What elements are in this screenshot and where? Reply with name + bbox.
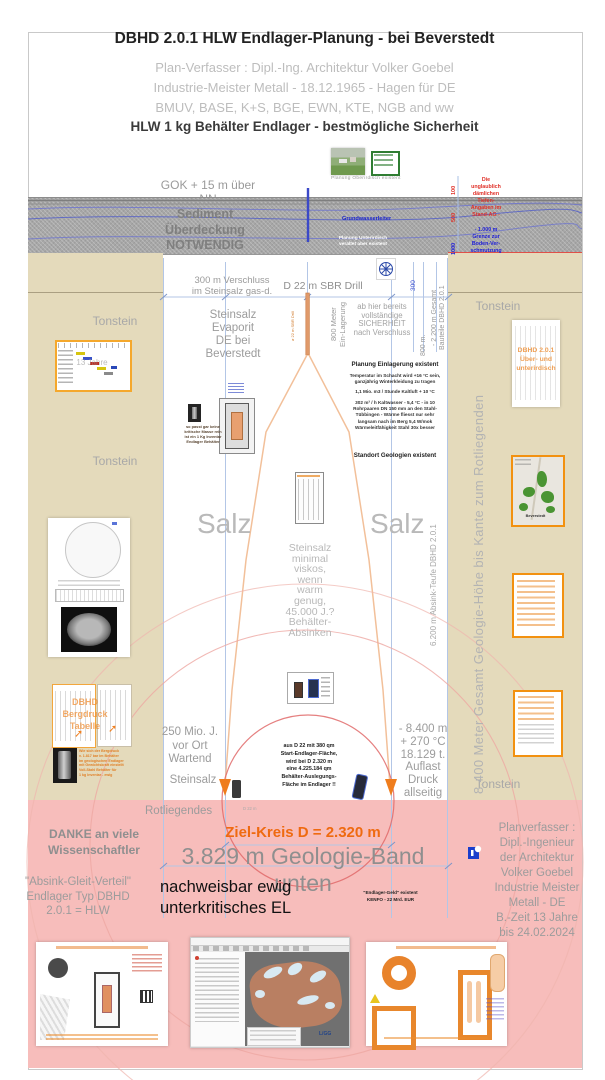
surface-building-shape (339, 159, 347, 163)
steel-container-note: Wie sich der Bergdruck v. 1.817 bar im B… (79, 749, 133, 778)
right-doc-thumbnail: DBHD 2.0.1 Über- und unterirdisch (512, 320, 560, 407)
salz-label-left: Salz (197, 508, 251, 540)
green-table-rows (374, 154, 393, 169)
plan-view-thumbnail (48, 518, 130, 657)
depth-mark-1000: 1000 (451, 236, 459, 255)
thanks-note: DANKE an viele Wissenschaftler (35, 826, 153, 858)
bdr-ring (382, 956, 416, 990)
surface-building-shape2 (350, 157, 356, 162)
poster-subtitle: HLW 1 kg Behälter Endlager - bestmöglich… (28, 119, 581, 134)
bdr-warning-triangle (370, 994, 380, 1003)
gantt-label: 13 Jahre (67, 358, 117, 367)
plan-circle (65, 522, 121, 578)
steel-container-photo (53, 748, 77, 783)
rotliegendes-label: Rotliegendes (145, 805, 212, 817)
container-section-core (231, 412, 243, 440)
ziel-kreis-label: Ziel-Kreis D = 2.320 m (203, 824, 403, 841)
einlagerung-p2: 1,1 Mio. m3 / Stunde Kaltluft + 10 °C (335, 389, 455, 394)
right-doc-label: DBHD 2.0.1 Über- und unterirdisch (512, 346, 560, 373)
container-photo-small (188, 404, 201, 422)
right-table-2-rows-gray (518, 724, 554, 746)
bss-salt-blob-4 (255, 990, 265, 998)
bottom-drawing-right (366, 942, 507, 1046)
salt-top-line-left (28, 292, 163, 293)
map-thumbnail: Beverstedt (511, 455, 565, 527)
map-legend-text (515, 459, 531, 468)
map-green-area-5 (546, 506, 555, 513)
d22-small-label: D 22 m (243, 806, 257, 811)
right-table-2-rows (518, 696, 554, 720)
salz-label-right: Salz (370, 508, 424, 540)
underground-plan-note: Planung Unterirdisch veraltet aber exist… (330, 236, 396, 249)
bdr-slot-2 (476, 981, 481, 1023)
gantt-header-row (58, 343, 125, 348)
tonstein-label-left-top: Tonstein (83, 314, 147, 328)
compass-icon (376, 258, 396, 280)
map-caption: Beverstedt (513, 514, 558, 518)
area-calc-note: aus D 22 mit 380 qm Start-Endlager-Fläch… (274, 743, 344, 790)
salt-core-photo (61, 607, 117, 652)
gantt-bar-5 (104, 372, 113, 375)
bdr-slot-1 (467, 981, 472, 1023)
bdl-title-line (56, 946, 148, 949)
steinsalz-small-label: Steinsalz (163, 774, 223, 786)
steel-container-cylinder (58, 751, 71, 779)
bergdruck-arrow-1: ➚ (74, 727, 83, 740)
author-block: Plan-Verfasser : Dipl.-Ing. Architektur … (28, 58, 581, 118)
repo-type-note: "Absink-Gleit-Verteil" Endlager Typ DBHD… (18, 875, 138, 919)
plan-section-bar (55, 589, 124, 602)
bss-blue-dot (195, 956, 199, 960)
load-note: - 8.400 m + 270 °C 18.129 t. Auflast Dru… (393, 723, 453, 800)
waiting-note: 250 Mio. J. vor Ort Wartend (158, 726, 222, 767)
bss-left-panel (191, 952, 246, 1046)
bdr-frame-a (372, 1006, 416, 1050)
bergdruck-arrow-2: ➚ (108, 722, 117, 735)
geology-log-thumbnail (295, 472, 324, 524)
dim-800: 800 m. (420, 312, 429, 356)
subcritical-note: nachweisbar ewig unterkritisches EL (160, 877, 320, 919)
bottom-software-screenshot: L/GG (190, 937, 350, 1048)
bdl-container (94, 972, 120, 1028)
bss-tree-items (195, 958, 239, 1022)
green-table-thumbnail (371, 151, 400, 176)
poster-page: DBHD 2.0.1 HLW Endlager-Planung - bei Be… (0, 0, 605, 1080)
right-table-2-thumbnail (513, 690, 563, 757)
el-detail-container1 (294, 682, 303, 698)
salt-core-ellipse (67, 613, 111, 646)
drill-label: D 22 m SBR Drill (263, 280, 383, 292)
gantt-bar-4 (97, 367, 106, 370)
storage-rot-label: 800 Meter Ein-Lagerung (329, 297, 347, 352)
dim-300: 300 (410, 273, 418, 291)
standort-title: Standort Geologien existent (340, 452, 450, 459)
bss-menubar (193, 946, 313, 951)
tonstein-label-left-mid: Tonstein (83, 454, 147, 468)
dim-2200: - 2.200 m Gesamt Bauteile DBHD 2.0.1 (431, 270, 448, 365)
surface-caption: Planung Oberirdisch existent (331, 176, 431, 181)
depth-blue-note: - 1.000 m Grenze zur Boden-Ver- schmutzu… (461, 227, 511, 255)
depth-red-note: Die unglaublich dämlichen Tiefen- Angabe… (461, 177, 511, 219)
right-table-1-rows (517, 580, 555, 628)
overburden-note: Sediment Überdeckung NOTWENDIG (150, 207, 260, 254)
ingenieur-logo-icon (468, 845, 483, 859)
bss-titlebar (191, 938, 349, 946)
einlagerung-p3: 302 m³ / h Kaltwasser - 5,4 °C - in 10 R… (335, 400, 455, 431)
bss-salt-blob-6 (325, 1002, 335, 1009)
bss-status-panel (247, 1027, 301, 1046)
gantt-thumbnail: 13 Jahre (55, 340, 132, 392)
salt-top-line-right (448, 292, 582, 293)
bdr-title-line (396, 946, 496, 949)
bdl-red-text (132, 954, 162, 972)
hoist-marks (228, 383, 244, 395)
geology-log-columns (298, 479, 320, 520)
bdl-container-core (102, 985, 112, 1013)
viscous-note: Steinsalz minimal viskos, wenn warm genu… (272, 543, 348, 638)
right-table-1-thumbnail (512, 573, 564, 638)
gantt-task-list (58, 350, 73, 384)
dim-6200: 6.200 m Absink-Teufe DBHD 2.0.1 (429, 506, 441, 646)
surface-render-thumbnail (331, 148, 365, 175)
bss-status-text (250, 1030, 296, 1042)
dim-8400: 8.400 Meter Gesamt Geologie-Höhe bis Kan… (471, 298, 491, 794)
bdl-qr-code (140, 990, 153, 1003)
plan-text-lines (58, 580, 120, 587)
container-note: so passt gar keine kritische Masse rein … (178, 424, 228, 444)
bdr-capsule (490, 954, 505, 992)
map-green-area-4 (519, 503, 528, 511)
plan-north-mark (112, 522, 117, 525)
kenfo-note: "Endlager-Geld" existent KENFO - 22 Mrd.… (348, 890, 433, 903)
map-green-area-1 (537, 471, 547, 487)
bottom-drawing-left (36, 942, 168, 1046)
einlagerung-p1: Temperatur im Schacht wird +16 °C sein, … (335, 373, 455, 385)
bdl-orange-text (46, 1034, 158, 1040)
bdr-blue-text (486, 998, 504, 1022)
el-detail-table (321, 677, 330, 699)
page-title: DBHD 2.0.1 HLW Endlager-Planung - bei Be… (28, 30, 581, 48)
depth-mark-500: 500 (451, 207, 459, 222)
bdr-orange-text (384, 1037, 488, 1041)
el-detail-thumbnail (287, 672, 334, 704)
aquifer-label: Grundwasserleiter (342, 216, 391, 222)
geology-log-header (297, 475, 320, 477)
safety-note: ab hier bereits vollständige SICHERHEIT … (350, 303, 414, 337)
evaporite-note: Steinsalz Evaporit DE bei Beverstedt (183, 309, 283, 361)
map-green-area-3 (541, 491, 554, 503)
software-brand: L/GG (319, 1031, 331, 1037)
el-detail-container2 (308, 679, 319, 698)
einlagerung-title: Planung Einlagerung existent (335, 361, 455, 368)
drill-side-label: ø 22 m SBR Drill (290, 303, 297, 341)
gantt-bar-1 (76, 352, 85, 355)
container-photo-cylinder (192, 407, 197, 419)
bdl-circle (48, 958, 68, 978)
depth-mark-100: 100 (451, 180, 459, 195)
author-right-note: Planverfasser : Dipl.-Ingenieur der Arch… (492, 821, 582, 941)
